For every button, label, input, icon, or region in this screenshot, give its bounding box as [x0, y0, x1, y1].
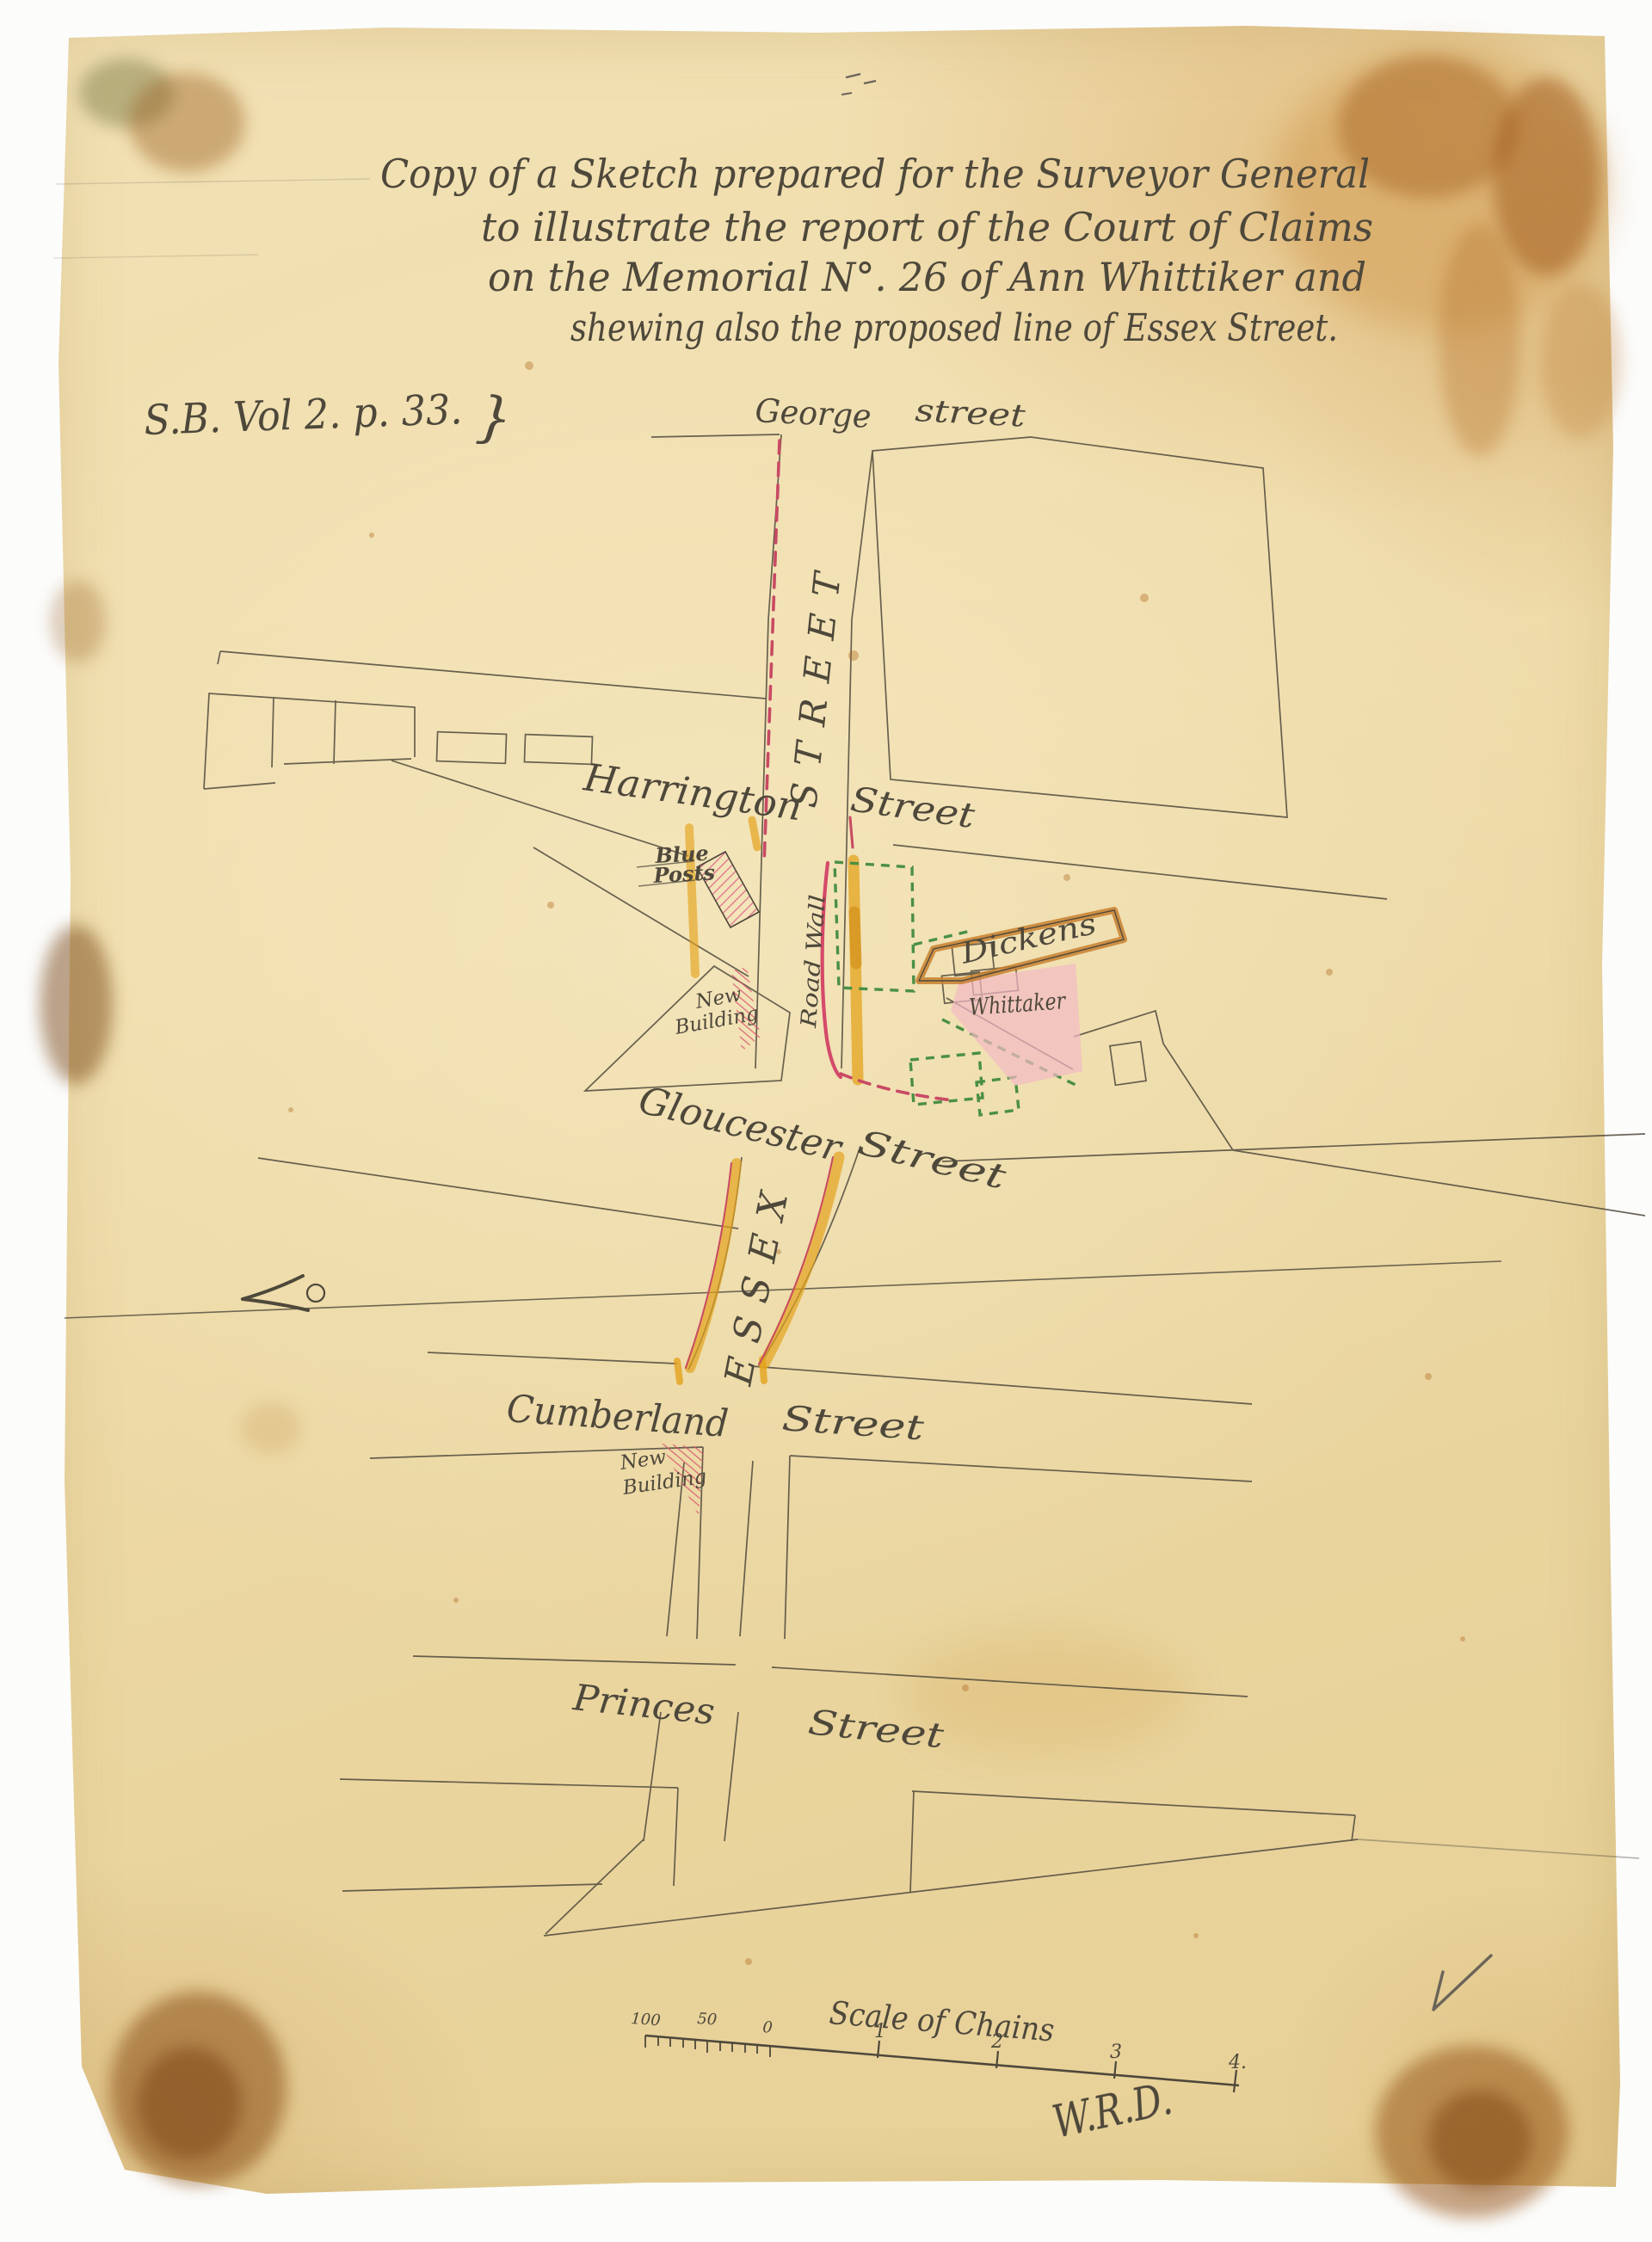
scale-bar-title: Scale of Chains [828, 1994, 1056, 2048]
cumberland-street-label-2: Street [780, 1399, 926, 1448]
volume-reference: S.B. Vol 2. p. 33. [143, 385, 463, 445]
princes-street-label: Princes [570, 1676, 717, 1733]
map-drawing: Copy of a Sketch prepared for the Survey… [0, 0, 1652, 2242]
central-street-label: STREET [782, 565, 849, 810]
george-street-label-2: street [915, 393, 1027, 434]
scale-tick-100: 100 [631, 2010, 662, 2030]
scanned-map-photo: { "title": { "line1": "Copy of a Sketch … [0, 0, 1652, 2242]
title-line-4: shewing also the proposed line of Essex … [570, 306, 1338, 350]
pencil-marks [53, 74, 1491, 2010]
scale-major-ticks [878, 2041, 1236, 2092]
scale-tick-1: 1 [874, 2021, 886, 2042]
check-mark-icon [1433, 1956, 1491, 2010]
cumberland-street-label: Cumberland [505, 1387, 730, 1446]
princes-street-label-2: Street [806, 1703, 946, 1756]
map-text: Copy of a Sketch prepared for the Survey… [143, 151, 1373, 2149]
scale-minor-ticks [645, 2036, 770, 2057]
scale-tick-50: 50 [697, 2010, 718, 2030]
scale-tick-0: 0 [762, 2018, 774, 2037]
george-street-label: George [755, 391, 872, 435]
surveyor-signature: W.R.D. [1048, 2073, 1176, 2149]
scale-tick-2: 2 [990, 2031, 1003, 2053]
title-line-2: to illustrate the report of the Court of… [481, 204, 1373, 250]
gloucester-street-label-2: Street [854, 1123, 1011, 1198]
volume-reference-brace: } [473, 385, 515, 452]
harrington-street-label: Harrington [580, 755, 804, 829]
scale-tick-3: 3 [1110, 2042, 1122, 2063]
harrington-street-label-2: Street [848, 779, 978, 836]
scale-tick-4: 4. [1228, 2052, 1247, 2073]
survey-arrow-icon [65, 1261, 1501, 1318]
title-line-3: on the Memorial N°. 26 of Ann Whittiker … [488, 254, 1366, 300]
title-line-1: Copy of a Sketch prepared for the Survey… [380, 151, 1370, 197]
street-lines [204, 434, 1645, 1936]
